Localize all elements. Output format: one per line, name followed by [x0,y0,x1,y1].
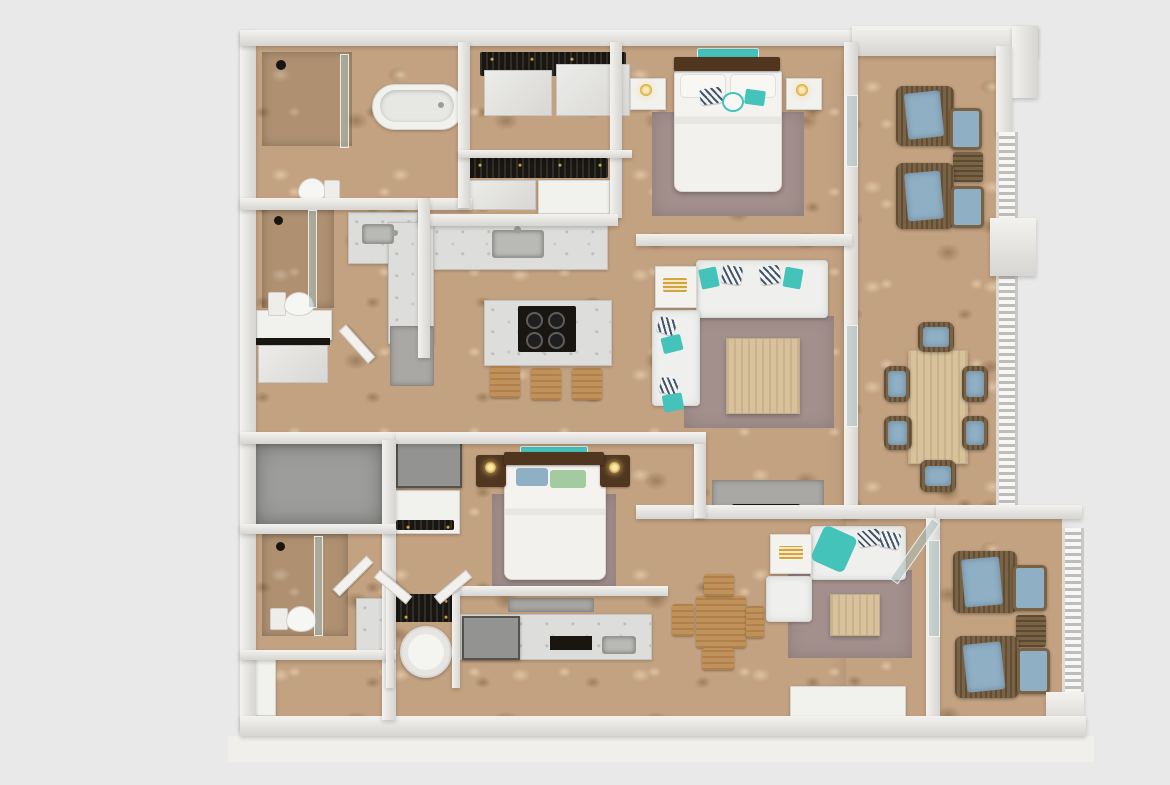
balcony-a-ottoman-1 [950,108,982,150]
wall-kitchenette-back [452,586,668,596]
bottom-exterior-apron [228,736,1094,762]
dining-chair-left-2 [884,416,912,450]
bath3-shower-head [276,542,285,551]
coffee-table-a [726,338,800,414]
closet-sliding-door-1 [484,70,552,116]
wall-kitchen-back [418,214,618,226]
bath3-toilet-bowl [286,606,316,632]
corner-table-b-tray [779,546,803,559]
burner-2 [548,312,565,329]
dining-chair-right-2 [962,416,988,450]
balcony-b-top-wall [936,505,1082,519]
outer-wall-top [240,30,860,46]
kitchenette-tv [462,616,520,660]
dining-table [908,350,968,464]
closet-nook-wall-right [452,582,460,688]
balcony-a-ottoman-2 [951,186,984,228]
balcony-b-ottoman-2 [1017,648,1050,694]
dining-chair-top-cushion [923,327,949,347]
living-a-sliding-door [846,325,858,427]
burner-1 [526,312,543,329]
bedroom-b-pillow-green [550,470,586,488]
closet-lower-top-wall [458,150,632,158]
wall-bath1-bath2-divider [240,198,472,210]
table-lamp-right [796,84,808,96]
master-accent-pillow-striped-left [699,87,723,106]
bedroom-b-lamp-right [609,462,620,473]
kitchen-sink [492,230,544,258]
dining-chair-right-1-cushion [966,371,984,397]
sofa-pillow-striped-2 [759,265,781,286]
burner-4 [548,332,565,349]
bath3-shower-glass [314,536,323,636]
balcony-b-side-table [1016,615,1046,647]
wall-bath2-right [418,198,430,358]
outer-wall-bottom [240,716,1086,736]
bedroom-b-tv [396,442,462,488]
bath2-faucet [392,230,398,236]
dining-chair-bottom-cushion [925,466,951,486]
dining-b-chair-top [704,574,734,596]
media-cabinet-bottles [396,520,454,530]
dining-chair-left-2-cushion [888,421,907,445]
balcony-a-cushion-1 [904,90,945,140]
wall-bath1-closet-divider [458,42,470,208]
closet-hanging-clothes-lower [468,158,608,178]
wall-bedroom-b-top [396,432,706,444]
kitchenette-wall-shelf [508,598,594,612]
dining-chair-top [918,322,954,352]
bath3-vanity [356,598,384,654]
kitchen-faucet [514,226,521,233]
shower-head-fixture [276,60,286,70]
outer-wall-left [240,30,256,730]
balcony-a-roof-return [1012,26,1038,98]
dining-chair-bottom [920,460,956,492]
bedroom-b-round-appliance [400,626,452,678]
closet-nook-wall-left [386,582,394,688]
island-cooktop [518,306,576,352]
wall-bath3-bottom [240,650,396,660]
table-lamp-left [640,84,652,96]
bedroom-b-pillow-blue [516,468,548,486]
dining-b-chair-bottom [702,648,734,670]
bathtub-drain [438,102,444,108]
dining-chair-left-1 [884,366,910,402]
bar-stool-3 [572,368,602,400]
closet-lower-door-1 [468,180,536,210]
closet-dresser [538,180,610,214]
balcony-a-side-wall [996,46,1012,136]
sofa-pillow-teal-2 [782,267,803,290]
linen-cabinet-front [258,345,328,383]
kitchenette-sink [602,636,636,654]
kitchenette-cooktop [550,636,592,650]
bedroom-b-headboard [504,452,604,465]
dining-b-chair-left [672,604,694,636]
wall-storage-top [240,432,396,444]
sofa-pillow-striped-1 [721,265,743,286]
bath2-shower-head [274,216,283,225]
bar-stool-1 [490,366,520,398]
master-accent-pillow-teal [744,89,766,107]
sofa-pillow-teal-1 [698,266,720,289]
railing-column-mid [990,218,1036,276]
storage-room-floor [254,444,384,524]
right-railing-upper [996,132,1018,518]
balcony-a-side-table [953,152,983,182]
dining-b-table [696,596,746,648]
master-shower-glass-panel [340,54,349,148]
master-accent-pillow-round [722,92,744,112]
linen-shelf-gap [256,338,330,345]
bedroom-b-lamp-left [485,462,496,473]
floor-plan-scene [0,0,1170,785]
chaise-pillow-teal-2 [662,392,685,412]
balcony-b-ottoman-1 [1013,565,1047,611]
dining-chair-left-1-cushion [888,371,906,397]
coffee-table-b [830,594,880,636]
wall-storage-bottom [240,524,396,534]
living-b-sliding-door [928,540,940,637]
balcony-b-cushion-2 [963,641,1006,693]
wall-master-bedroom-bottom [636,234,852,246]
balcony-a-cushion-2 [904,171,944,222]
corner-table-tray [663,278,687,292]
dining-chair-right-2-cushion [966,421,984,445]
dining-chair-right-1 [962,366,988,402]
bath2-shower-glass [308,210,317,308]
wall-bedroom-b-right [694,444,706,518]
armchair-b [766,576,812,622]
burner-3 [526,332,543,349]
unit-divider-wall [636,505,942,519]
bar-stool-2 [531,368,561,400]
wall-closet-bedroom-divider [610,42,622,218]
balcony-b-cushion-1 [961,556,1003,607]
master-bed-headboard [674,57,780,71]
master-bedroom-window [846,95,858,167]
bath2-sink [362,224,394,244]
master-toilet-tank [324,180,340,200]
dining-b-chair-right [746,606,764,638]
